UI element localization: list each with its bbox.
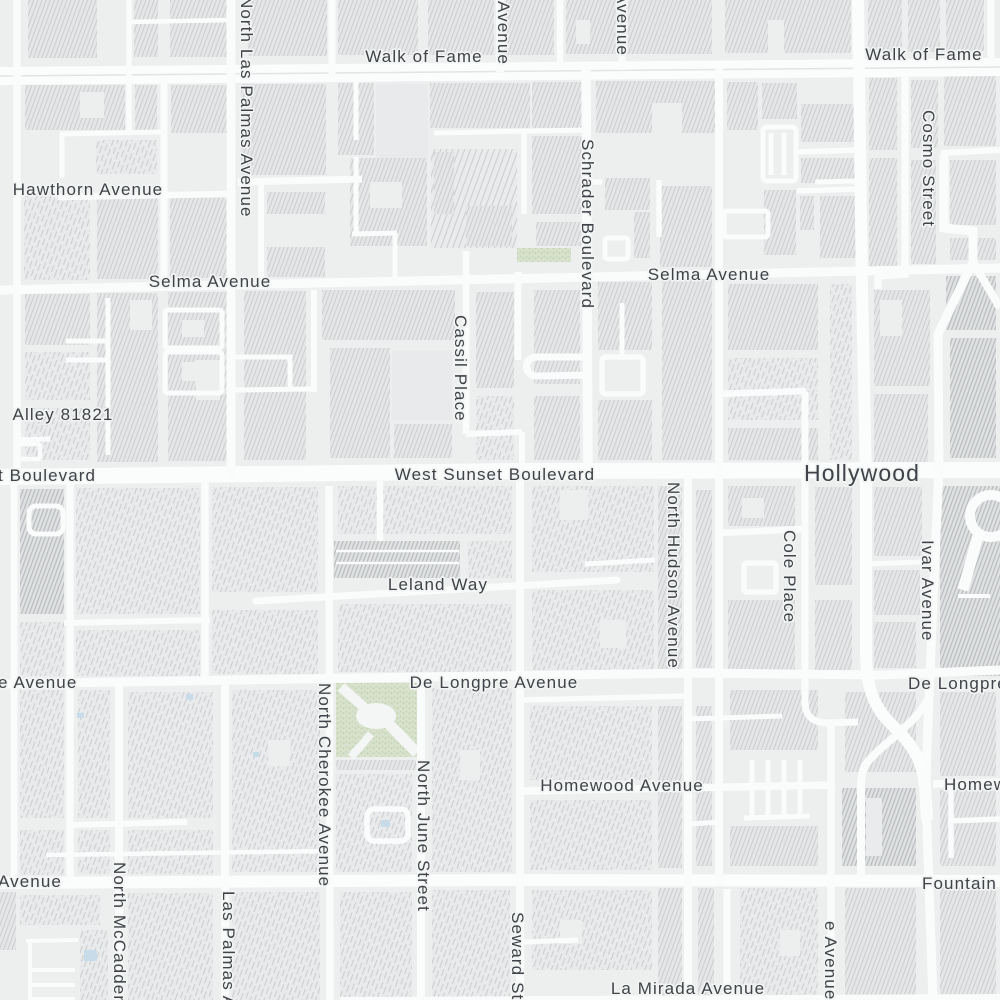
svg-text:Seward Street: Seward Street — [508, 912, 527, 1000]
svg-text:Hollywood: Hollywood — [804, 460, 920, 486]
svg-text:Homewood Avenue: Homewood Avenue — [540, 776, 704, 795]
svg-text:Cassil Place: Cassil Place — [451, 315, 470, 422]
svg-text:e Avenue: e Avenue — [821, 921, 840, 1000]
svg-text:Selma Avenue: Selma Avenue — [648, 265, 771, 284]
svg-text:North McCadden Pl: North McCadden Pl — [110, 862, 129, 1000]
svg-text:Schrader Boulevard: Schrader Boulevard — [578, 139, 597, 309]
svg-text:Avenue: Avenue — [613, 0, 632, 56]
svg-text:Cosmo Street: Cosmo Street — [919, 110, 938, 227]
svg-text:Avenue: Avenue — [494, 1, 513, 65]
svg-text:Alley 81821: Alley 81821 — [13, 405, 114, 424]
svg-text:Selma Avenue: Selma Avenue — [149, 272, 272, 291]
svg-text:Cole Place: Cole Place — [780, 530, 799, 623]
svg-text:Ivar Avenue: Ivar Avenue — [918, 540, 937, 642]
svg-text:De Longpre Avenue: De Longpre Avenue — [410, 673, 579, 692]
svg-text:North Hudson Avenue: North Hudson Avenue — [664, 482, 683, 669]
svg-text:Fountain Avenue: Fountain Avenue — [922, 874, 1000, 893]
svg-text:West Sunset Boulevard: West Sunset Boulevard — [395, 465, 595, 484]
svg-text:Avenue: Avenue — [0, 872, 62, 891]
svg-text:North Cherokee Avenue: North Cherokee Avenue — [315, 683, 334, 887]
svg-text:Leland Way: Leland Way — [388, 575, 488, 594]
svg-text:De Longpre: De Longpre — [908, 674, 1000, 693]
svg-text:Las Palmas Avenue: Las Palmas Avenue — [219, 891, 238, 1000]
svg-text:North June Street: North June Street — [414, 760, 433, 912]
svg-text:Homewood: Homewood — [944, 775, 1000, 794]
svg-text:Walk of Fame: Walk of Fame — [865, 45, 982, 64]
svg-text:Walk of Fame: Walk of Fame — [365, 47, 482, 66]
svg-text:e Avenue: e Avenue — [0, 673, 77, 692]
svg-text:La Mirada Avenue: La Mirada Avenue — [611, 979, 765, 998]
svg-text:Hawthorn Avenue: Hawthorn Avenue — [13, 180, 163, 199]
svg-text:North Las Palmas Avenue: North Las Palmas Avenue — [237, 0, 256, 218]
svg-text:t Boulevard: t Boulevard — [0, 466, 96, 485]
